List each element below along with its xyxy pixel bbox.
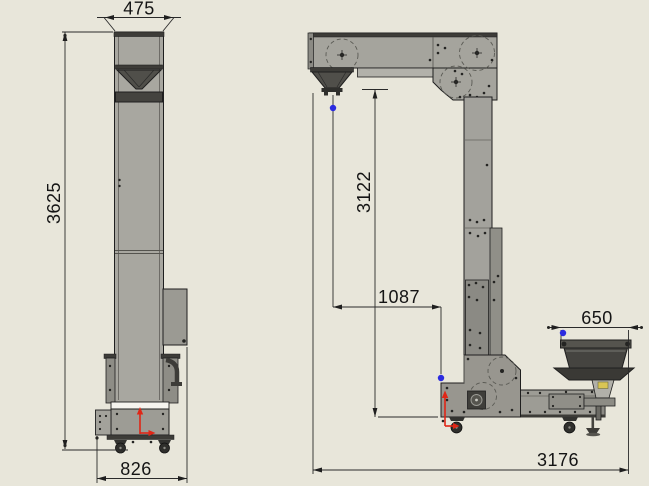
- front-foot-bolt: [150, 441, 153, 444]
- front-base-plate: [107, 435, 174, 440]
- front-foot-bolt: [132, 441, 135, 444]
- front-column-top-cap: [114, 32, 164, 37]
- front-side-panel-bolt: [182, 339, 186, 343]
- front-caster-right: [158, 440, 171, 453]
- side-view: [308, 33, 634, 436]
- front-base-left-box: [96, 410, 112, 435]
- dim-side-drop-height: 3122: [354, 90, 438, 418]
- dimension-point-icon: [560, 330, 566, 336]
- front-view: [96, 32, 188, 453]
- side-infeed-hopper: [311, 68, 354, 96]
- front-side-panel: [163, 289, 187, 345]
- front-hopper-flange: [116, 65, 163, 69]
- dimension-point-icon: [438, 375, 444, 381]
- side-foot-bolt: [442, 420, 445, 423]
- technical-drawing: 475 3625 826: [0, 0, 649, 486]
- side-column-inner-panel: [466, 280, 489, 355]
- dim-front-overall-height-label: 3625: [44, 182, 64, 224]
- dim-side-inlet-offset: 1087: [333, 95, 441, 374]
- feeder-top-bar: [561, 340, 632, 348]
- side-base-access-panel: [549, 394, 584, 409]
- dim-side-drop-height-label: 3122: [354, 171, 374, 213]
- front-rail-left: [106, 358, 115, 403]
- side-boom-lower-strip: [358, 68, 437, 77]
- warning-label-icon: [598, 382, 608, 389]
- dimension-point-icon: [330, 105, 336, 111]
- front-caster-left: [114, 440, 127, 453]
- side-top-boom-cap: [310, 33, 498, 37]
- front-dark-band: [116, 92, 163, 102]
- side-column-rear-panel: [490, 228, 502, 360]
- side-top-boom: [310, 33, 498, 68]
- feeder-tray: [554, 368, 634, 380]
- boot-motor: [468, 391, 486, 409]
- dim-side-inlet-offset-label: 1087: [378, 287, 420, 307]
- side-caster-mid: [562, 417, 578, 433]
- dim-front-top-width-label: 475: [123, 0, 155, 19]
- dimension-point-icons: [330, 105, 566, 381]
- dim-side-overall-length-label: 3176: [537, 450, 579, 470]
- feeder-bracket: [584, 398, 615, 406]
- dim-front-base-width-label: 826: [120, 459, 152, 479]
- dim-front-top-width: 475: [97, 0, 181, 31]
- front-elbow-pipe-cap: [171, 382, 182, 386]
- drawing-canvas: 475 3625 826: [0, 0, 649, 486]
- dim-side-feeder-width-label: 650: [581, 308, 613, 328]
